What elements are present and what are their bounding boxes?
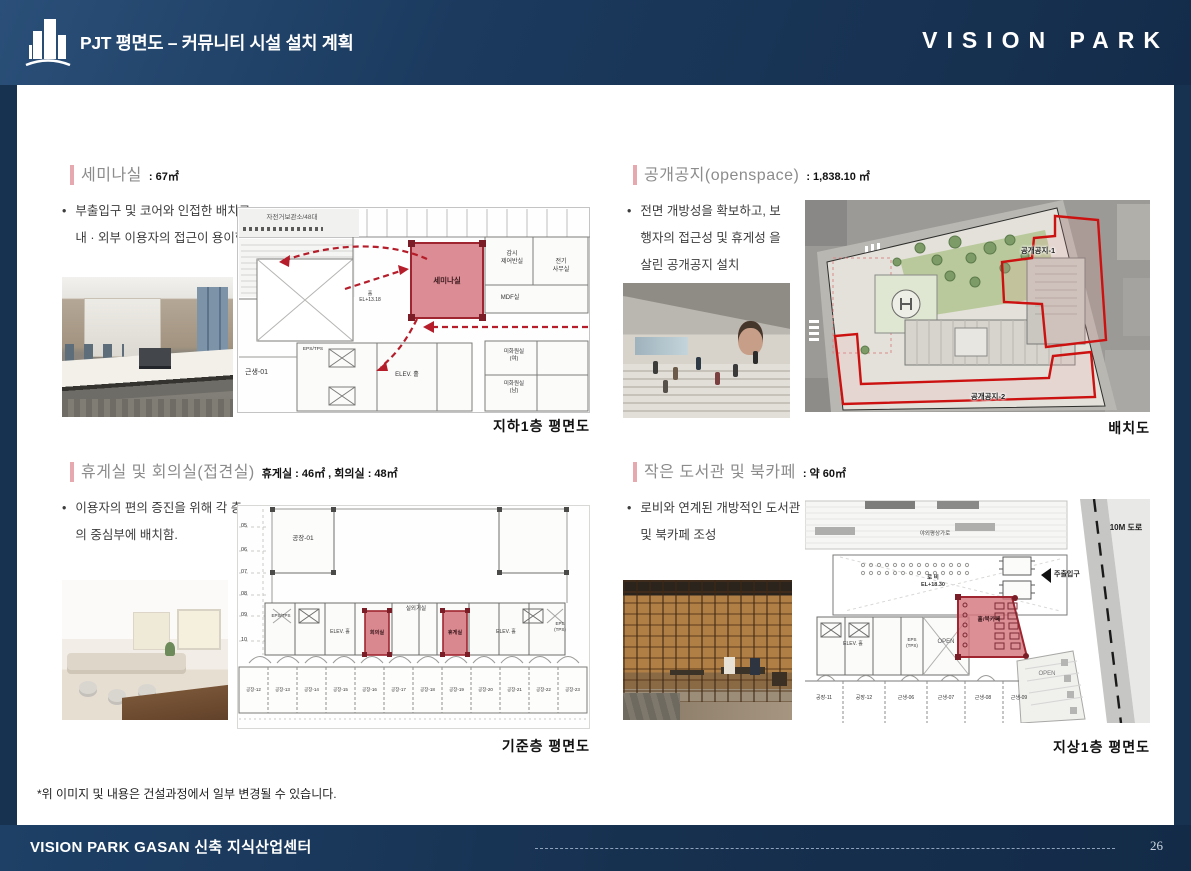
room-label: 공장-23: [558, 687, 587, 693]
seminar-room-photo: [62, 277, 233, 417]
room-label: 근생-09: [1001, 695, 1037, 701]
photo-carpet: [62, 399, 233, 417]
label-promenade: 야외평상가로: [897, 531, 973, 538]
bullet-dot: •: [627, 495, 631, 549]
section-area-value: : 약 60㎡: [803, 465, 846, 482]
accent-bar: [70, 165, 74, 185]
bullet-text: 로비와 연계된 개방적인 도서관 및 북카페 조성: [640, 495, 802, 549]
person-figure: [663, 380, 668, 393]
room-label-gamsi: 감시 제어반실: [490, 251, 534, 266]
room-label-seminar: 세미나실: [411, 243, 483, 318]
section-openspace-bullet: • 전면 개방성을 확보하고, 보행자의 접근성 및 휴게성 을 살린 공개공지…: [627, 198, 792, 279]
bullet-text: 부출입구 및 코어와 인접한 배치로 내 · 외부 이용자의 접근이 용이함.: [75, 198, 252, 252]
content-area: 세미나실 : 67㎡ • 부출입구 및 코어와 인접한 배치로 내 · 외부 이…: [17, 85, 1174, 825]
site-plan: 공개공지-1 공개공지-2: [805, 200, 1150, 412]
page-number: 26: [1150, 825, 1163, 867]
typical-floor-plan: 공장-01 EPS/TPS ELEV. 홀 회의실 실외기실 휴게실 ELEV.…: [237, 505, 590, 729]
room-label-elev2: ELEV. 홀: [489, 629, 523, 635]
accent-bar: [70, 462, 74, 482]
ground-plan-drawing: [805, 499, 1150, 723]
caption-ground: 지상1층 평면도: [1010, 737, 1150, 757]
person-figure: [733, 364, 738, 377]
photo-chair: [772, 672, 787, 686]
accent-bar: [633, 462, 637, 482]
room-label: 공장-18: [413, 687, 442, 693]
section-seminar-header: 세미나실 : 67㎡: [70, 165, 179, 185]
section-lounge-header: 휴게실 및 회의실(접견실) 휴게실 : 46㎡ , 회의실 : 48㎡: [70, 462, 398, 482]
bullet-dot: •: [627, 198, 631, 279]
caption-basement: 지하1층 평면도: [437, 416, 590, 436]
zone-label-2: 공개공지-2: [953, 392, 1023, 401]
label-open2: OPEN: [1031, 671, 1063, 679]
room-label: 공장-13: [268, 687, 297, 693]
room-label-rest: 휴게실: [443, 611, 467, 655]
room-label: 공장-19: [442, 687, 471, 693]
photo-stool: [79, 681, 97, 694]
section-area-value: : 67㎡: [149, 168, 179, 185]
terrace-band: [805, 501, 1067, 549]
room-label: 공장-12: [239, 687, 268, 693]
room-label-eps: EPS (TPS): [900, 637, 924, 648]
plaza-people: [623, 283, 790, 418]
grid-number: 09: [241, 612, 247, 619]
room-label: 공장-17: [384, 687, 413, 693]
room-label: 공장-11: [806, 695, 842, 701]
bullet-dot: •: [62, 198, 66, 252]
person-figure: [673, 367, 678, 380]
grid-number: 05: [241, 523, 247, 530]
rear-terrace: [1017, 651, 1085, 723]
footer-bar: VISION PARK GASAN 신축 지식산업센터 26: [0, 825, 1191, 871]
ground-floor-plan: 야외평상가로 로 비 EL+18.30 주출입구 10M 도로 OPEN OPE…: [805, 499, 1150, 723]
footer-project-name: VISION PARK GASAN 신축 지식산업센터: [30, 825, 312, 867]
grid-number: 07: [241, 569, 247, 576]
person-figure: [653, 361, 658, 374]
room-label: 공장-12: [846, 695, 882, 701]
section-title: 작은 도서관 및 북카페: [644, 463, 796, 482]
room-label-eps: EPS/TPS: [299, 347, 327, 353]
room-label-eps2: EPS (TPS): [547, 621, 573, 632]
caption-siteplan: 배치도: [1030, 418, 1150, 438]
photo-plant: [165, 642, 175, 656]
section-openspace-header: 공개공지(openspace) : 1,838.10 ㎡: [633, 165, 870, 185]
site-plan-drawing: [805, 200, 1150, 412]
person-figure: [696, 357, 701, 370]
room-label-center: 실외기실: [395, 606, 437, 613]
person-figure: [715, 372, 720, 385]
grid-number: 10: [241, 637, 247, 644]
bullet-dot: •: [62, 495, 66, 549]
photo-window: [177, 609, 222, 650]
caption-typical: 기준층 평면도: [437, 736, 590, 756]
section-seminar-bullet: • 부출입구 및 코어와 인접한 배치로 내 · 외부 이용자의 접근이 용이함…: [62, 198, 252, 252]
room-label-bike: 자전거보관소/48대: [240, 214, 344, 222]
room-label: 근생-06: [888, 695, 924, 701]
label-open1: OPEN: [927, 639, 965, 647]
accent-bar: [633, 165, 637, 185]
room-label-geunsaeng: 근생-01: [245, 369, 289, 378]
section-library-bullet: • 로비와 연계된 개방적인 도서관 및 북카페 조성: [627, 495, 802, 549]
room-label: 공장-22: [529, 687, 558, 693]
room-label-mdf: MDF실: [490, 295, 530, 303]
label-road: 10M 도로: [1103, 523, 1149, 533]
person-figure: [753, 351, 758, 364]
room-label-top: 공장-01: [279, 535, 327, 543]
section-lounge-bullet: • 이용자의 편의 증진을 위해 각 층의 중심부에 배치함.: [62, 495, 252, 549]
room-label-mihwa-f: 미화원실 (여): [491, 349, 537, 363]
room-label: 공장-21: [500, 687, 529, 693]
brand-logo: VISION PARK: [922, 0, 1169, 80]
grid-number: 06: [241, 547, 247, 554]
building-logo-icon: [25, 15, 71, 69]
room-label-elev: ELEV. 홀: [835, 641, 871, 647]
photo-stone-floor: [623, 693, 680, 720]
room-label: 공장-14: [297, 687, 326, 693]
photo-person: [750, 658, 760, 675]
bullet-text: 이용자의 편의 증진을 위해 각 층의 중심부에 배치함.: [75, 495, 252, 549]
room-label-elev1: ELEV. 홀: [323, 629, 357, 635]
slide: PJT 평면도 – 커뮤니티 시설 설치 계획 VISION PARK 세미나실…: [0, 0, 1191, 871]
room-label-mihwa-m: 미화원실 (남): [491, 381, 537, 395]
openspace-photo: [623, 283, 790, 418]
lounge-photo: [62, 580, 228, 720]
footer-divider: [535, 848, 1115, 849]
photo-sofa: [67, 653, 187, 674]
page-title: PJT 평면도 – 커뮤니티 시설 설치 계획: [80, 0, 353, 85]
basement-floor-plan: 자전거보관소/48대 세미나실 감시 제어반실 전기 사무실 MDF실 근생-0…: [237, 207, 590, 413]
photo-table: [670, 670, 704, 676]
room-label: 공장-15: [326, 687, 355, 693]
bullet-text: 전면 개방성을 확보하고, 보행자의 접근성 및 휴게성 을 살린 공개공지 설…: [640, 198, 792, 279]
section-title: 세미나실: [81, 166, 142, 185]
section-area-value: 휴게실 : 46㎡ , 회의실 : 48㎡: [262, 465, 398, 482]
photo-laptop: [139, 348, 171, 369]
photo-window: [133, 612, 170, 650]
room-label: 공장-20: [471, 687, 500, 693]
room-label-elev: ELEV. 홀: [381, 372, 433, 380]
grid-number: 08: [241, 591, 247, 598]
photo-person: [724, 657, 734, 674]
disclaimer-note: *위 이미지 및 내용은 건설과정에서 일부 변경될 수 있습니다.: [37, 785, 337, 802]
section-library-header: 작은 도서관 및 북카페 : 약 60㎡: [633, 462, 846, 482]
section-area-value: : 1,838.10 ㎡: [806, 168, 870, 185]
room-label-eps: EPS/TPS: [267, 613, 295, 619]
room-label: 근생-07: [928, 695, 964, 701]
label-lobby: 로 비 EL+18.30: [905, 575, 961, 589]
room-label-hall-level: 홀 EL+13.18: [353, 291, 387, 304]
section-title: 공개공지(openspace): [644, 166, 799, 185]
room-label-meeting: 회의실: [365, 611, 389, 655]
section-title: 휴게실 및 회의실(접견실): [81, 463, 255, 482]
header-bar: PJT 평면도 – 커뮤니티 시설 설치 계획 VISION PARK: [0, 0, 1191, 85]
room-label: 근생-08: [965, 695, 1001, 701]
zone-label-1: 공개공지-1: [1003, 246, 1073, 255]
library-photo: [623, 580, 792, 720]
room-label: 공장-16: [355, 687, 384, 693]
label-entrance: 주출입구: [1054, 571, 1104, 580]
room-label-bookcafe: 홀/북카페: [961, 617, 1017, 624]
bottom-strip: [239, 667, 587, 719]
room-label-jeongi: 전기 사무실: [538, 259, 584, 274]
